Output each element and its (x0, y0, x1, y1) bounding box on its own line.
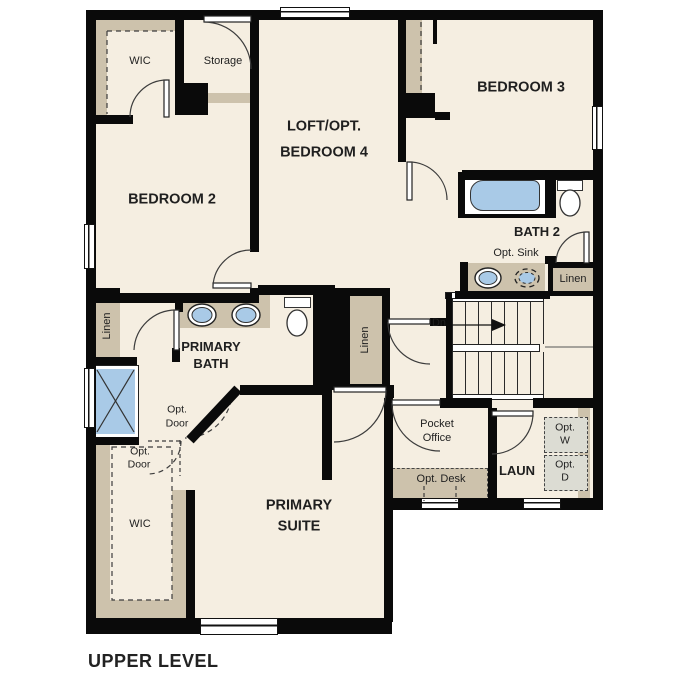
wall-laun-top (533, 398, 603, 408)
page-title: UPPER LEVEL (88, 651, 219, 672)
label-opt-w-line2: W (560, 435, 570, 446)
label-loft-line1: LOFT/OPT. (287, 119, 361, 134)
label-primary-bath-line2: BATH (193, 357, 228, 371)
label-primary-suite-line1: PRIMARY (266, 498, 332, 513)
label-opt-d-line2: D (561, 472, 569, 483)
label-linen-hall: Linen (360, 327, 372, 354)
wall-linen-left-bottom (96, 357, 137, 365)
wall-bath-jamb-upper (175, 293, 183, 312)
stairs-lower-flight (452, 352, 544, 394)
label-opt-w-line1: Opt. (555, 422, 575, 433)
wic-lower-shelf-bottom (96, 600, 192, 618)
wall-suite-door-jamb (386, 385, 394, 398)
label-storage: Storage (204, 56, 243, 68)
wic-upper-shelf-left (96, 20, 107, 116)
stairs-upper-flight (452, 302, 544, 344)
wall-bath2-vanity-left (460, 262, 468, 292)
wall-right (593, 10, 603, 510)
label-linen-bath2: Linen (560, 274, 587, 286)
bedroom3-closet-shelf (406, 20, 422, 93)
label-opt-door1-line1: Opt. (167, 404, 187, 415)
stairs-mid-rail (452, 344, 540, 352)
label-laun: LAUN (499, 464, 535, 478)
label-pocket-office-line2: Office (423, 433, 452, 445)
floor-plan: WIC Storage BEDROOM 2 LOFT/OPT. BEDROOM … (0, 0, 687, 687)
wall-stairs-top (455, 291, 550, 299)
wall-linen-left-top (96, 288, 120, 296)
label-pocket-office-line1: Pocket (420, 419, 454, 431)
label-opt-door2-line1: Opt. (130, 446, 150, 457)
window-office-bottom (421, 498, 459, 509)
wall-suite-hall-left (322, 385, 332, 480)
label-bedroom3: BEDROOM 3 (477, 80, 565, 95)
shower-pan (96, 369, 135, 434)
wall-bedroom3-bottom (462, 170, 603, 180)
window-loft-top (280, 7, 350, 18)
bathtub (470, 180, 540, 211)
wic-lower-shelf-right (172, 490, 186, 602)
label-opt-sink: Opt. Sink (493, 248, 538, 260)
label-dn: Dn (432, 318, 446, 330)
window-bedroom3-right (592, 106, 603, 150)
wic-upper-shelf-top (96, 20, 175, 31)
label-bedroom2: BEDROOM 2 (128, 192, 216, 207)
wall-wic-storage (175, 10, 184, 83)
wall-b3-closet-stub (433, 18, 437, 44)
wall-wic-bottom (86, 115, 133, 124)
wall-b3-closet-chunk (398, 93, 435, 118)
toilet-tank-bath2 (557, 180, 583, 191)
label-opt-desk: Opt. Desk (417, 474, 466, 486)
wall-suite-right (384, 398, 393, 622)
label-primary-suite-line2: SUITE (278, 519, 321, 534)
wall-bedroom2-right (250, 10, 259, 252)
wall-left (86, 10, 96, 626)
wall-loft-right (398, 10, 406, 162)
window-shower-left (84, 368, 95, 428)
wall-suite-top (240, 385, 332, 395)
bath2-vanity (468, 263, 545, 292)
wall-wic-lower-right (186, 490, 195, 622)
wall-office-top (440, 398, 492, 408)
label-loft-line2: BEDROOM 4 (280, 145, 368, 160)
storage-shelf (208, 93, 250, 103)
wic-lower-shelf-left (96, 445, 110, 618)
wall-below-shower (92, 437, 139, 445)
label-linen-left: Linen (102, 313, 114, 340)
wall-wic-storage-chunk (175, 83, 208, 115)
label-wic-lower: WIC (129, 519, 150, 531)
label-bath2: BATH 2 (514, 225, 560, 239)
wall-b3-entry (435, 112, 450, 120)
window-primary-suite-bottom (200, 618, 278, 635)
label-opt-door1-line2: Door (166, 418, 189, 429)
wall-office-laun (488, 408, 497, 503)
label-opt-d-line1: Opt. (555, 459, 575, 470)
wall-stairs-left (446, 293, 452, 400)
window-bedroom2-left (84, 224, 95, 269)
label-primary-bath-line1: PRIMARY (181, 340, 240, 354)
label-wic-upper: WIC (129, 56, 150, 68)
label-opt-door2-line2: Door (128, 459, 151, 470)
toilet-tank-primary (284, 297, 311, 308)
window-laun-bottom (523, 498, 561, 509)
wall-bath-jamb-lower (172, 348, 180, 362)
